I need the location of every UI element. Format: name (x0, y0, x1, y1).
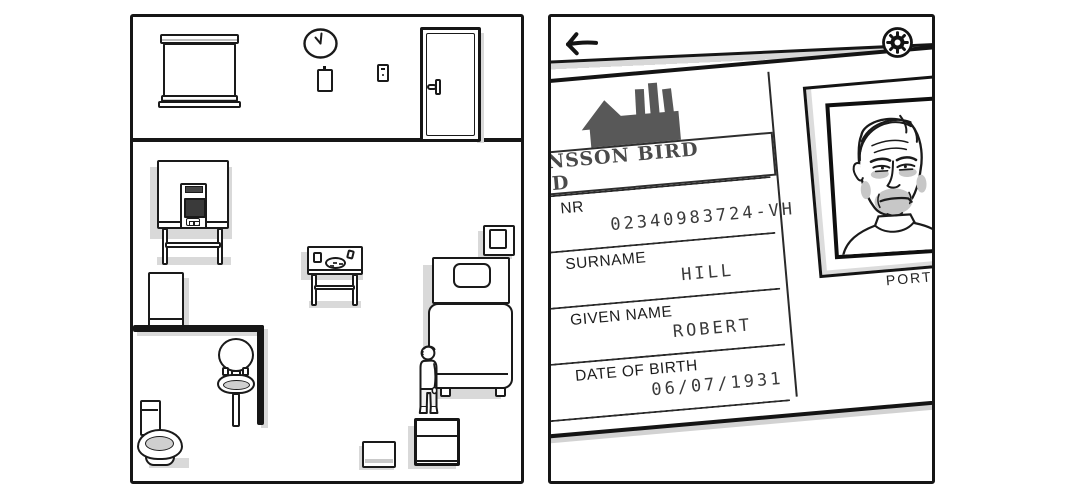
fridge-line (150, 318, 182, 320)
drawer-line (417, 435, 457, 437)
plate[interactable] (325, 257, 346, 269)
table-crossbar (165, 242, 221, 248)
wall-clock[interactable] (303, 28, 338, 59)
shirt (841, 212, 935, 257)
door[interactable] (420, 27, 481, 142)
table-leg (352, 274, 358, 306)
sink[interactable] (213, 365, 259, 427)
field-label-nr: NR (560, 198, 585, 218)
box-stripe (365, 459, 393, 463)
headboard (432, 257, 510, 304)
switch-dot (382, 74, 384, 76)
sink-bowl (217, 374, 255, 394)
tv-table[interactable] (147, 157, 247, 269)
robert-character[interactable] (415, 345, 445, 419)
calendar-page (317, 69, 333, 92)
sink-pedestal (232, 393, 240, 427)
sink-basin (223, 380, 250, 390)
tank-lid-line (142, 409, 158, 411)
wall-cabinet[interactable] (478, 225, 515, 258)
toilet-bowl (137, 429, 183, 460)
portrait-frame (803, 73, 935, 278)
mug[interactable] (313, 252, 322, 263)
cardboard-box[interactable] (359, 441, 397, 470)
table-leg (311, 274, 317, 306)
plinth-line (416, 460, 458, 462)
card-divider-line (767, 72, 797, 397)
toilet[interactable] (135, 400, 191, 470)
back-button[interactable] (559, 25, 601, 61)
light-switch[interactable] (377, 64, 389, 82)
window-sill-bottom (158, 101, 241, 108)
tv-top-cap (185, 186, 203, 193)
settings-button[interactable] (881, 26, 914, 59)
minute-hand (321, 34, 322, 44)
hand (432, 388, 436, 394)
tv-knob (194, 221, 200, 226)
chimney (662, 88, 674, 115)
partition-wall-horizontal (133, 325, 264, 332)
table-crossbar (314, 285, 355, 290)
tv-set[interactable] (180, 183, 207, 229)
food (333, 262, 337, 264)
switch-toggle (381, 68, 385, 70)
tv-panel (186, 218, 200, 226)
nose (422, 352, 423, 355)
bedside-cabinet[interactable] (408, 416, 461, 471)
pillow (453, 263, 491, 288)
bed-foot (495, 387, 506, 397)
tv-screen (184, 198, 206, 218)
chimney (648, 83, 660, 117)
window-pane (163, 43, 236, 97)
window[interactable] (160, 34, 239, 109)
cabinet-inner (489, 229, 507, 249)
shoes (420, 407, 438, 413)
chimney (635, 89, 645, 117)
profile-panel: JOHNSSON BIRD FOOD NR 02340983724-VH SUR… (548, 14, 935, 484)
back-arrow-icon (567, 33, 596, 54)
dining-table[interactable] (301, 243, 367, 309)
portrait-photo (825, 96, 935, 259)
table-edge-line (307, 269, 363, 271)
toilet-seat (145, 436, 174, 451)
employee-id-card: JOHNSSON BIRD FOOD NR 02340983724-VH SUR… (548, 37, 935, 444)
wall-calendar[interactable] (317, 66, 333, 92)
room-panel (130, 14, 524, 484)
